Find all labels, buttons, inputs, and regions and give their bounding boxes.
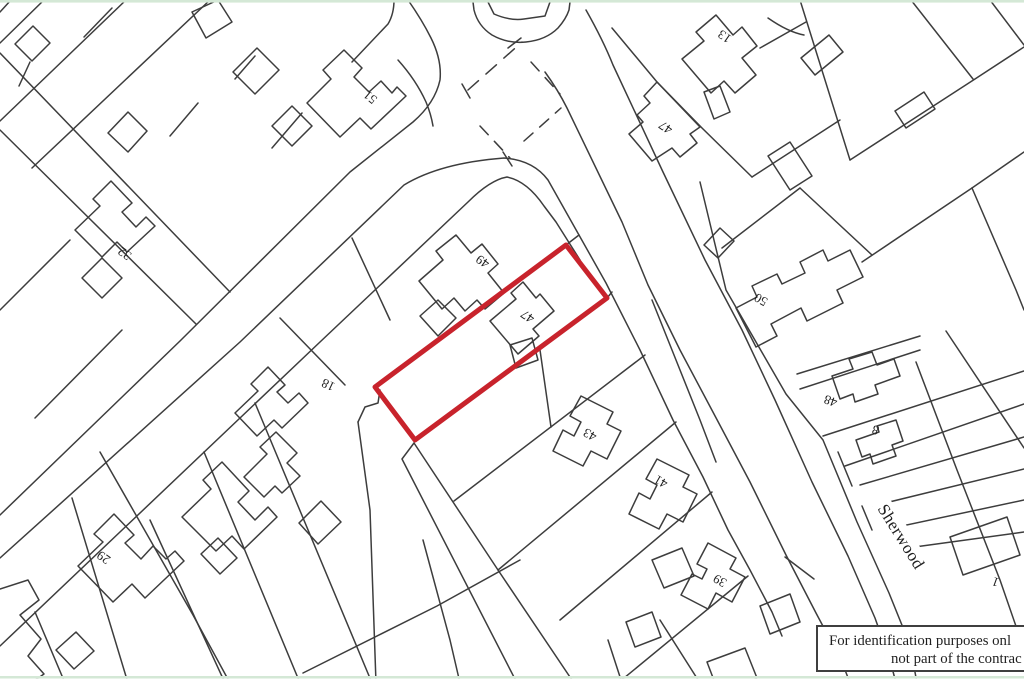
svg-text:43: 43 [580,425,599,444]
svg-text:49: 49 [473,252,492,272]
svg-text:not part of the contrac: not part of the contrac [891,651,1022,667]
svg-text:47: 47 [655,118,675,138]
svg-text:Sherwood: Sherwood [874,501,929,573]
svg-text:50: 50 [751,290,770,309]
svg-text:51: 51 [360,88,380,108]
svg-text:48: 48 [822,392,839,411]
svg-text:13: 13 [715,27,734,47]
svg-text:39: 39 [710,571,729,590]
svg-text:41: 41 [651,472,670,491]
svg-text:8: 8 [870,422,881,438]
svg-text:1: 1 [990,574,1001,590]
svg-text:18: 18 [319,376,337,395]
svg-text:47: 47 [517,307,537,327]
svg-text:For identification purposes on: For identification purposes onl [829,633,1011,649]
svg-text:29: 29 [94,548,113,568]
